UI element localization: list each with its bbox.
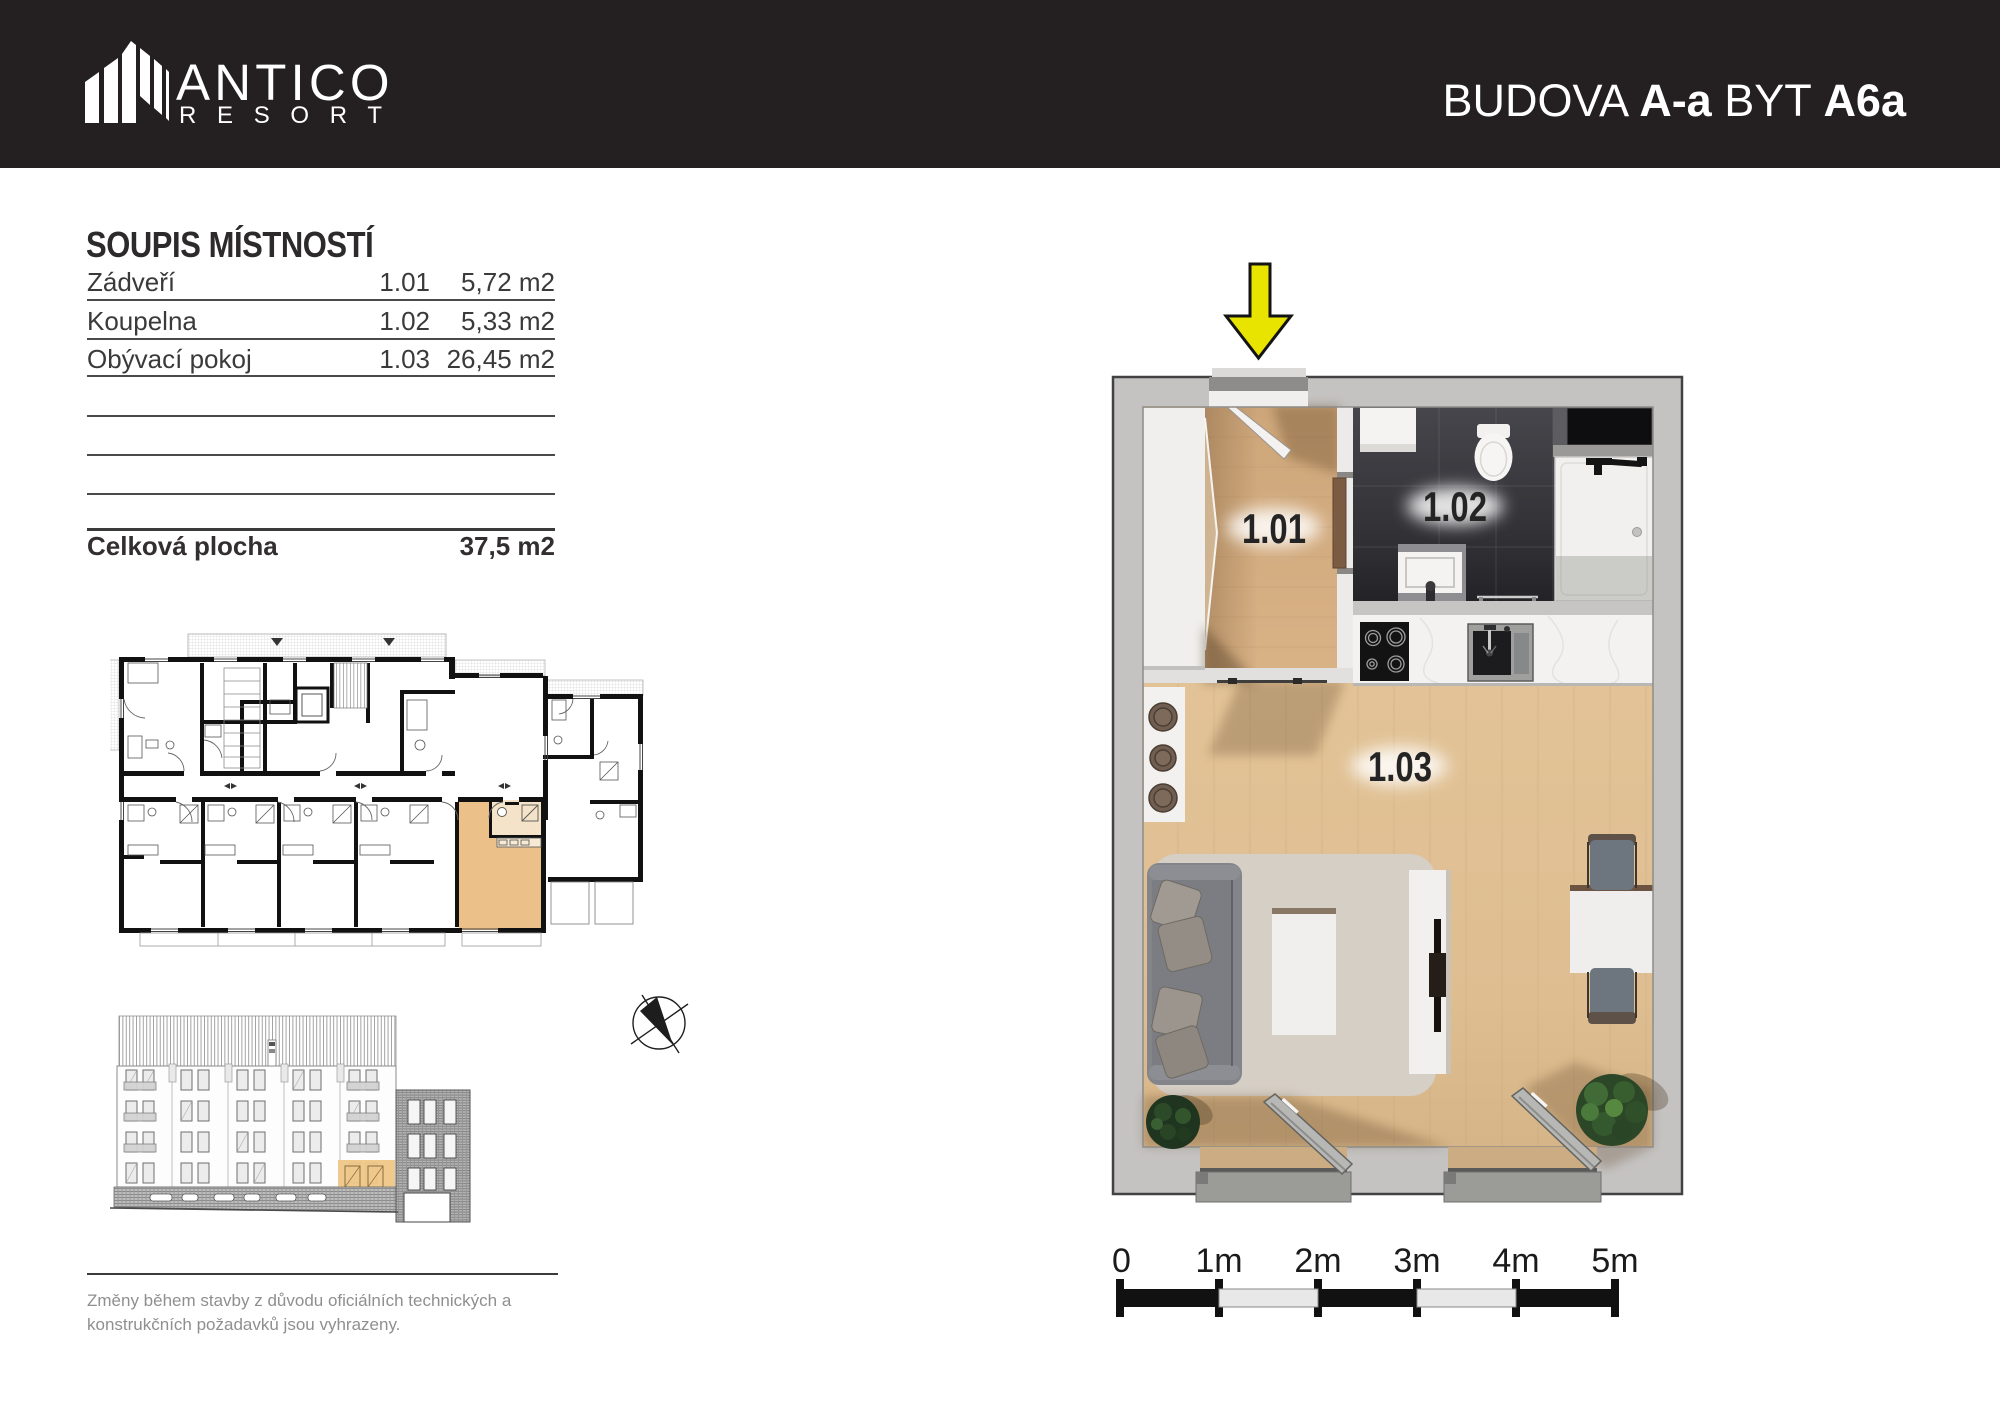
svg-text:3m: 3m (1393, 1242, 1440, 1280)
svg-text:4m: 4m (1492, 1242, 1539, 1280)
svg-text:1m: 1m (1195, 1242, 1242, 1280)
svg-text:1.03: 1.03 (1368, 743, 1432, 790)
svg-text:5m: 5m (1591, 1242, 1638, 1280)
svg-text:0: 0 (1112, 1242, 1131, 1280)
svg-text:1.01: 1.01 (1242, 505, 1306, 552)
svg-text:2m: 2m (1294, 1242, 1341, 1280)
svg-text:1.02: 1.02 (1423, 483, 1487, 530)
